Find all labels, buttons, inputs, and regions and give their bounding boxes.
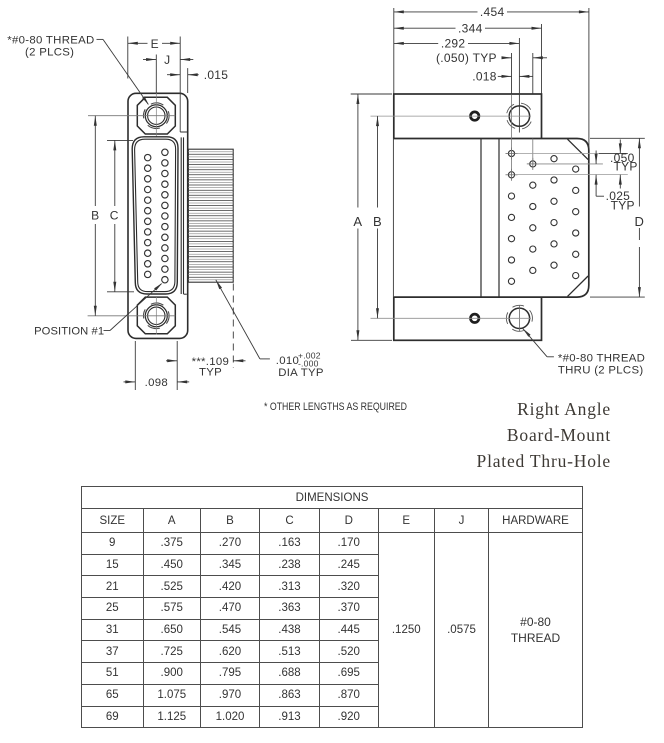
svg-text:B: B [91, 208, 99, 222]
svg-text:TYP: TYP [611, 199, 635, 213]
svg-text:*#0-80 THREAD: *#0-80 THREAD [558, 353, 645, 365]
svg-text:.018: .018 [472, 70, 497, 84]
svg-text:POSITION #1: POSITION #1 [34, 325, 104, 337]
svg-text:.454: .454 [480, 5, 505, 19]
svg-text:.292: .292 [441, 37, 466, 51]
svg-text:D: D [635, 214, 645, 229]
svg-text:.010: .010 [276, 355, 299, 367]
svg-text:(2 PLCS): (2 PLCS) [25, 46, 74, 58]
svg-text:A: A [353, 214, 362, 229]
svg-text:TYP: TYP [614, 160, 638, 174]
svg-text:C: C [110, 208, 119, 222]
svg-text:*#0-80 THREAD: *#0-80 THREAD [7, 34, 94, 46]
svg-text:B: B [373, 214, 382, 229]
svg-text:DIA TYP: DIA TYP [278, 367, 324, 379]
svg-text:J: J [164, 53, 170, 67]
svg-text:(.050) TYP: (.050) TYP [436, 51, 497, 65]
svg-text:.015: .015 [204, 68, 229, 82]
svg-text:THRU (2 PLCS): THRU (2 PLCS) [558, 364, 644, 376]
svg-text:E: E [151, 37, 159, 51]
svg-text:TYP: TYP [199, 366, 222, 378]
svg-text:.098: .098 [145, 377, 168, 389]
svg-text:.344: .344 [458, 22, 483, 36]
